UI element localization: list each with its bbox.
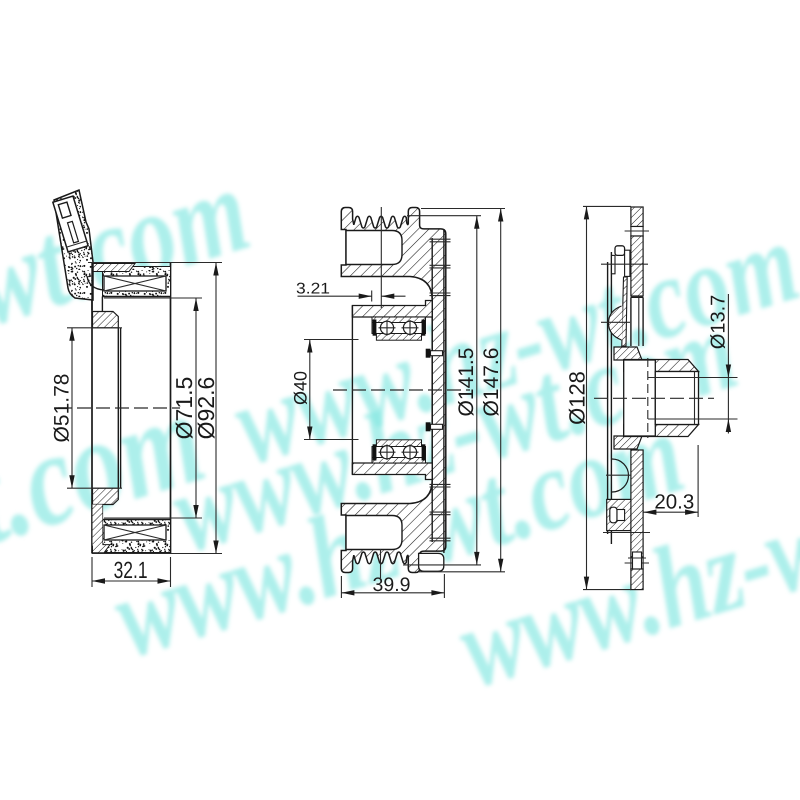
svg-text:Ø92.6: Ø92.6 — [193, 377, 219, 440]
svg-text:Ø13.7: Ø13.7 — [708, 295, 730, 349]
svg-text:Ø40: Ø40 — [291, 371, 311, 405]
svg-text:Ø51.78: Ø51.78 — [51, 374, 74, 443]
svg-text:Ø147.6: Ø147.6 — [480, 348, 503, 417]
svg-text:Ø128: Ø128 — [565, 371, 590, 425]
svg-text:Ø141.5: Ø141.5 — [455, 348, 478, 417]
svg-text:3.21: 3.21 — [296, 281, 330, 298]
svg-text:39.9: 39.9 — [373, 574, 411, 596]
svg-text:20.3: 20.3 — [654, 491, 694, 514]
svg-text:32.1: 32.1 — [114, 557, 148, 583]
